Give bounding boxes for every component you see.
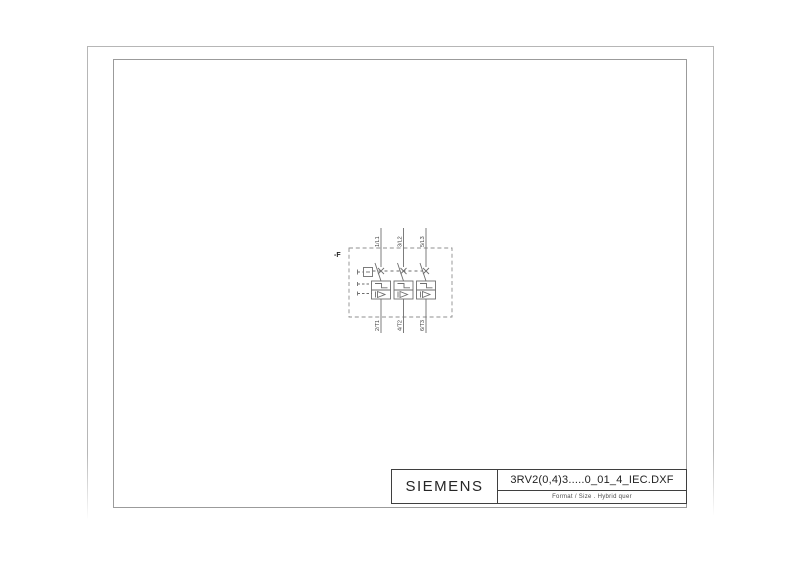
title-block-right-column: 3RV2(0,4)3.....0_01_4_IEC.DXF Format / S…	[498, 470, 686, 503]
terminal-label-bottom-1: 2/T1	[375, 320, 381, 331]
device-boundary-dashed-box	[349, 248, 452, 317]
siemens-logo-text: SIEMENS	[405, 478, 483, 495]
terminal-label-top-1: 1/L1	[375, 236, 381, 247]
device-designation-label: -F	[334, 252, 341, 259]
terminal-label-top-3: 5/L3	[420, 236, 426, 247]
format-size-cell: Format / Size . Hybrid quer	[498, 491, 686, 503]
thermal-release-icon	[420, 284, 433, 288]
magnetic-release-icon	[421, 292, 431, 298]
terminal-label-bottom-3: 6/T3	[420, 320, 426, 331]
title-block: SIEMENS 3RV2(0,4)3.....0_01_4_IEC.DXF Fo…	[391, 469, 687, 504]
terminal-label-top-2: 3/L2	[398, 236, 404, 247]
breaker-contact-x-icon	[420, 263, 429, 281]
terminal-label-bottom-2: 4/T2	[398, 320, 404, 331]
drawing-filename-cell: 3RV2(0,4)3.....0_01_4_IEC.DXF	[498, 470, 686, 491]
siemens-brand-cell: SIEMENS	[392, 470, 498, 503]
magnetic-release-icon	[398, 292, 408, 298]
magnetic-release-icon	[376, 292, 386, 298]
breaker-contact-x-icon	[375, 263, 384, 281]
breaker-contact-x-icon	[398, 263, 407, 281]
thermal-release-icon	[398, 284, 411, 288]
thermal-release-icon	[375, 284, 388, 288]
format-size-text: Format / Size . Hybrid quer	[552, 494, 632, 500]
drawing-filename: 3RV2(0,4)3.....0_01_4_IEC.DXF	[510, 474, 673, 486]
dxf-preview-page: -F	[0, 0, 800, 565]
